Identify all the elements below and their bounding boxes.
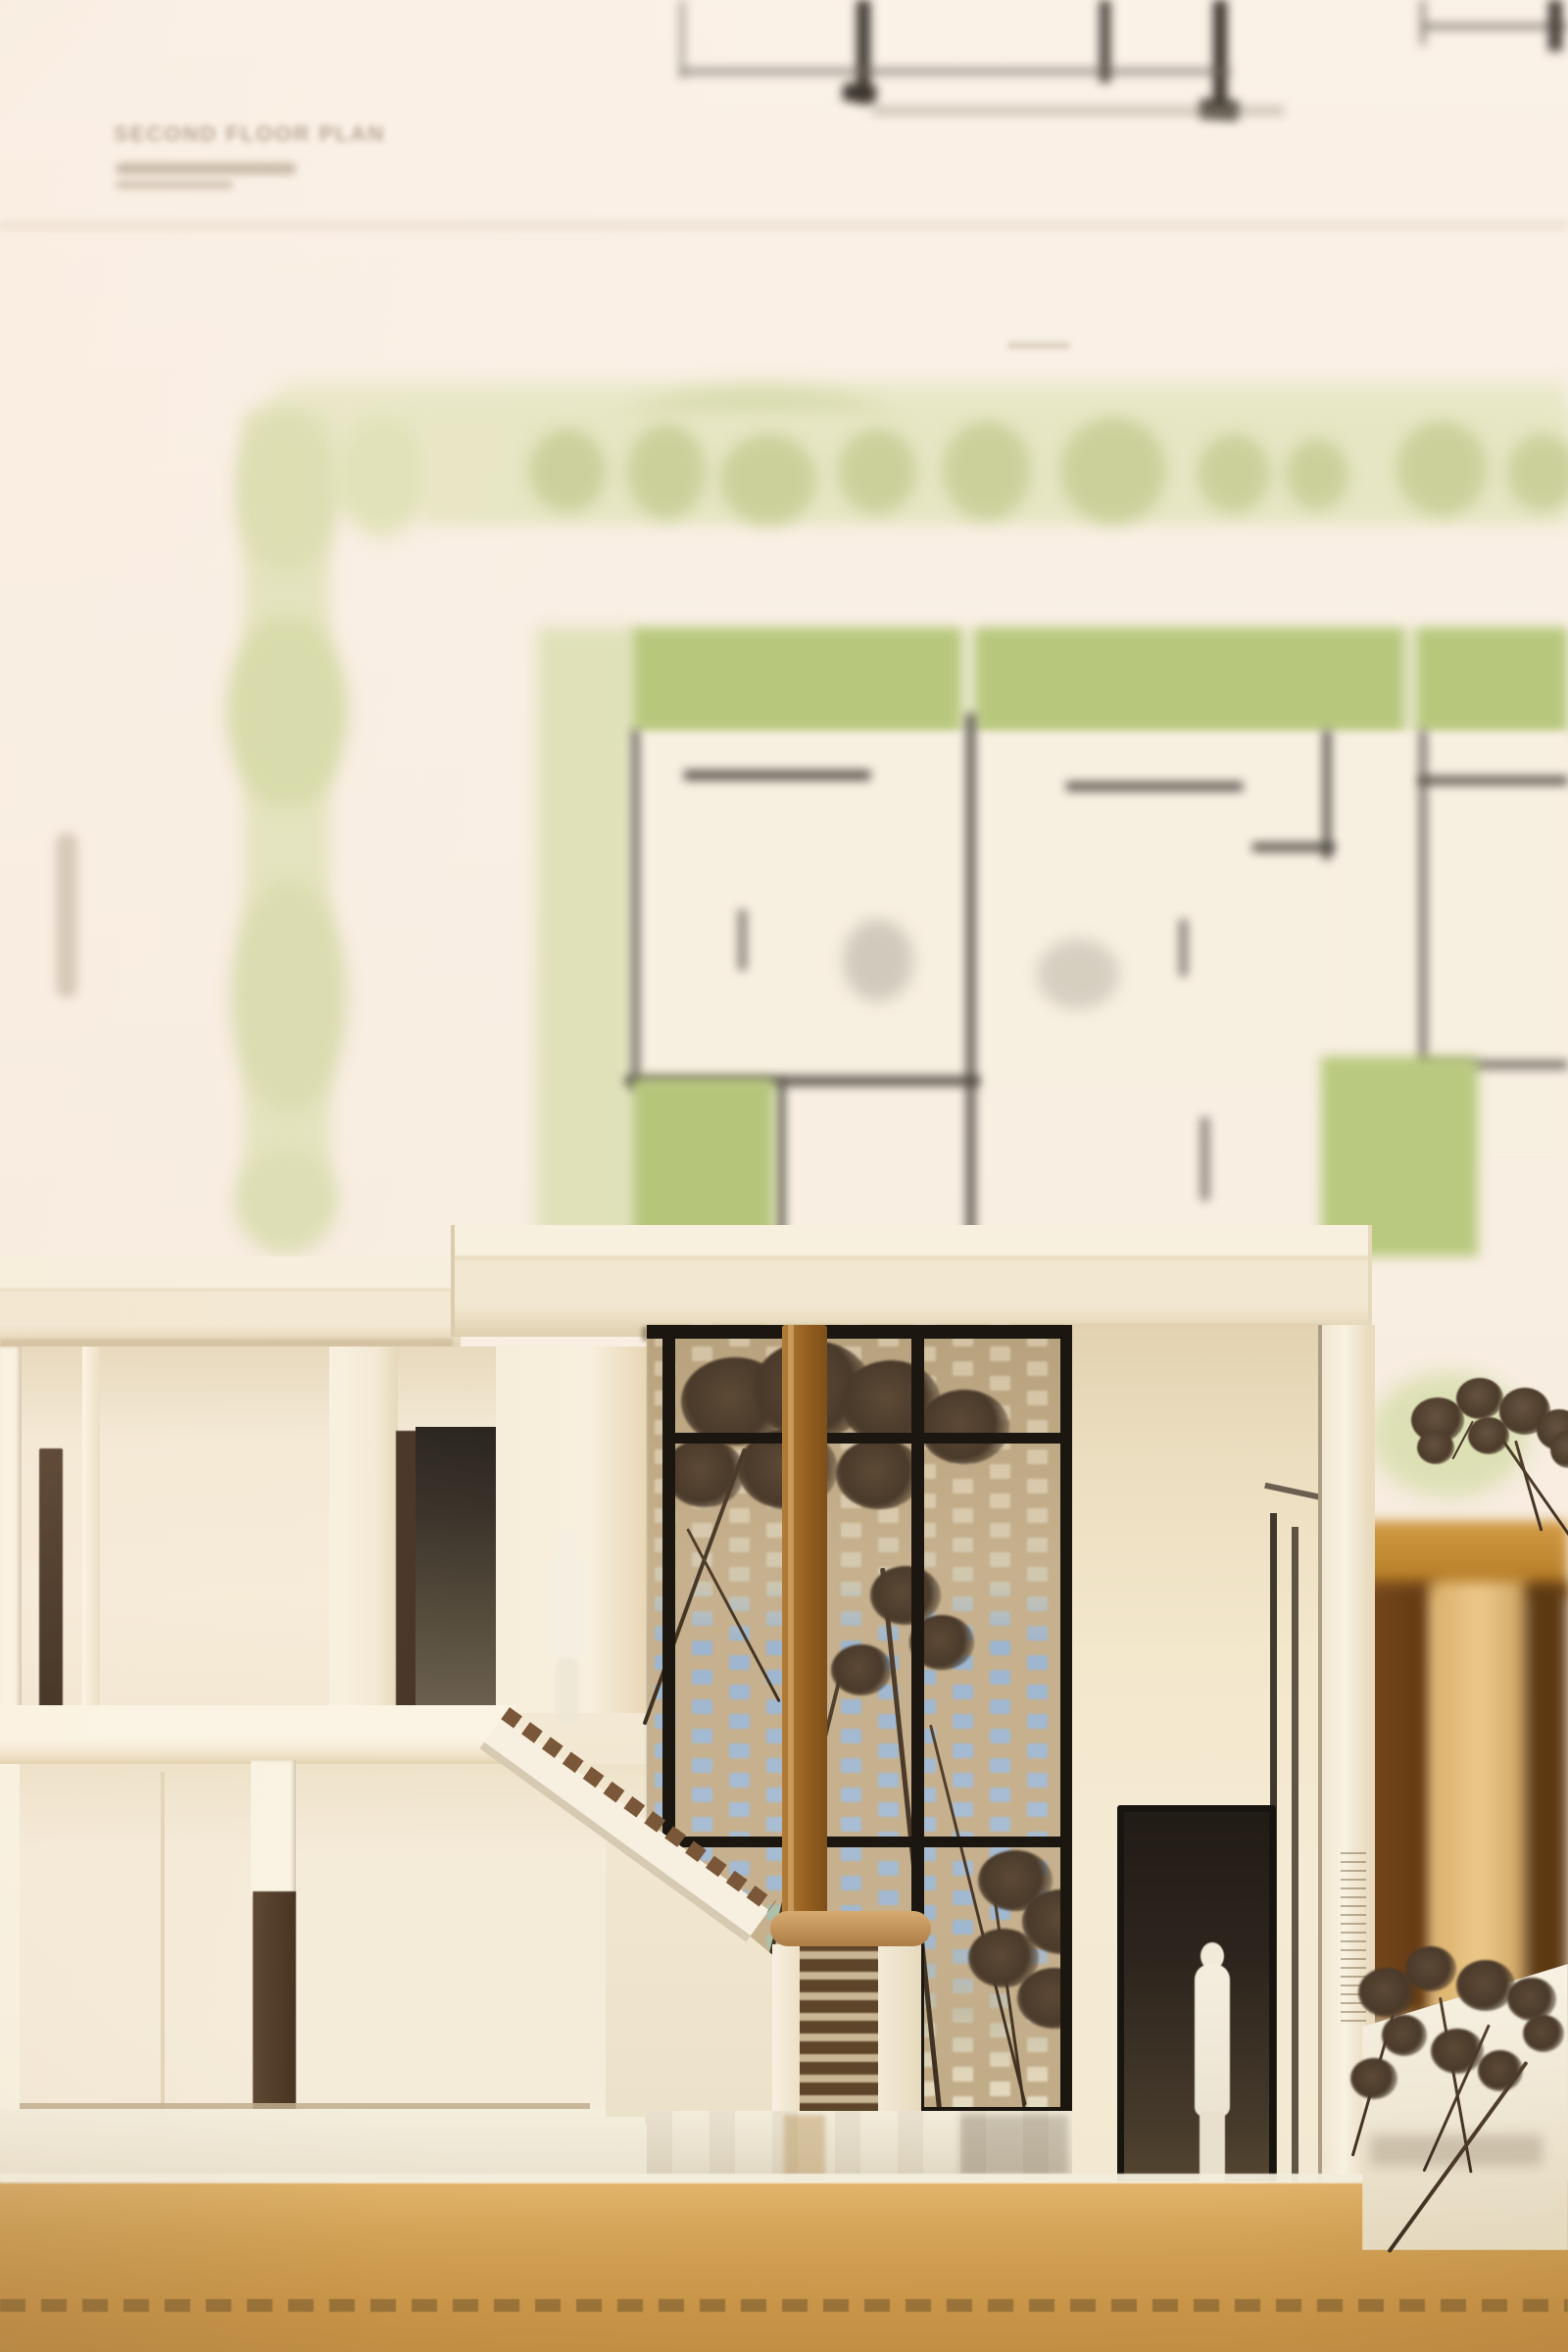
tree-symbol [337, 416, 427, 537]
plan-wall [632, 730, 639, 1091]
tree-blob [1507, 434, 1568, 511]
tree-blob [838, 429, 916, 514]
figure-body [1195, 1964, 1230, 2117]
model-tree-foliage [919, 1390, 1009, 1464]
photo-architectural-model-scene: SECOND FLOOR PLAN [0, 0, 1568, 2352]
plan-wall [966, 713, 975, 1258]
plan-wall [1419, 730, 1427, 1068]
siteplan-garden-row [632, 627, 1568, 733]
dark-window-frame [39, 1448, 63, 1735]
scale-figure-main [1192, 1942, 1233, 2203]
corner-glazing-frame [1292, 1527, 1298, 2189]
lower-room [0, 1764, 649, 2119]
poster-subtitle-blur [116, 163, 296, 174]
plan-wall [1179, 919, 1188, 976]
poster-vertical-note-blur [56, 833, 77, 998]
terrace-plant-head [1431, 2029, 1484, 2074]
tree-symbol [226, 615, 348, 808]
tree-blob [1060, 417, 1166, 523]
plan-line [1421, 24, 1568, 29]
plan-line [680, 0, 684, 78]
dried-flower-head [1468, 1417, 1509, 1454]
scale-figure-upper [547, 1529, 588, 1715]
dried-flower-head [1456, 1378, 1503, 1419]
tree-reflection [960, 2115, 1068, 2176]
terrace-plant-head [1523, 2015, 1564, 2052]
dark-window-frame [396, 1431, 417, 1709]
siteplan-green-column [537, 627, 633, 1256]
plan-wall [1419, 776, 1568, 785]
plan-marker [842, 83, 876, 103]
figure-body [551, 1548, 584, 1666]
tree-blob [1198, 434, 1270, 513]
terrace-plant-head [1456, 1960, 1515, 2011]
window-mullion-horizontal [662, 1433, 1073, 1444]
plan-fixture-smudge [1037, 939, 1119, 1009]
poster-title: SECOND FLOOR PLAN [114, 122, 385, 147]
left-edge-wall-lower [0, 1764, 20, 2119]
roof-edge-line [1368, 1225, 1372, 1337]
model-roof-left [0, 1256, 461, 1347]
poster-dash-blur [1007, 342, 1070, 349]
tree-blob [1396, 421, 1487, 515]
window-mullion-horizontal [662, 1837, 1073, 1847]
plan-line [1548, 0, 1562, 51]
plan-line [872, 106, 1284, 116]
base-shading [0, 2181, 1568, 2352]
tree-symbol [235, 1149, 337, 1254]
plan-wall [1323, 730, 1331, 859]
model-tree-foliage [831, 1644, 892, 1695]
plan-wall [777, 1081, 785, 1236]
plan-wall [1252, 843, 1335, 852]
terrace-plant-head [1507, 1978, 1556, 2021]
tree-symbol [231, 880, 347, 1113]
garden-seam [1404, 627, 1416, 733]
partition-wall [329, 1347, 398, 1762]
floor-slab [0, 1705, 515, 1766]
model-roof-center [451, 1225, 1372, 1337]
plan-fixture-smudge [843, 919, 913, 1002]
poster-crease [0, 218, 1568, 233]
terrace-plant-head [1382, 2015, 1427, 2056]
tree-blob [943, 421, 1031, 519]
handrail [770, 1911, 931, 1946]
white-post [251, 1760, 296, 1899]
dark-doorway [416, 1427, 498, 1711]
white-mullion [82, 1347, 100, 1766]
plan-line [1213, 0, 1227, 116]
tree-symbol [235, 410, 337, 574]
wall-seam [161, 1772, 165, 2113]
tree-blob [627, 424, 706, 518]
tree-blob [529, 429, 606, 512]
plan-wall [738, 909, 747, 970]
terrace-plant-head [1478, 2050, 1523, 2091]
plan-line [1421, 0, 1425, 45]
roof-joint-line [451, 1225, 455, 1337]
tree-blob [720, 434, 816, 524]
plan-wall [1200, 1117, 1209, 1200]
poster-subtitle-blur [116, 180, 233, 189]
plan-line [680, 69, 1231, 74]
terrace-plant-head [1350, 2058, 1397, 2099]
plan-wall [684, 770, 870, 780]
left-edge-wall [0, 1347, 22, 1766]
plan-wall [1066, 782, 1243, 791]
pier-edge-line [1318, 1325, 1322, 2189]
dried-flower-head [1417, 1431, 1454, 1464]
tree-blob [1286, 439, 1348, 510]
model-tree-foliage [836, 1439, 922, 1509]
figure-legs [556, 1658, 579, 1727]
window-frame-top [647, 1325, 1083, 1339]
terrace-plant-head [1405, 1946, 1456, 1991]
model-tree-foliage [664, 1439, 745, 1507]
